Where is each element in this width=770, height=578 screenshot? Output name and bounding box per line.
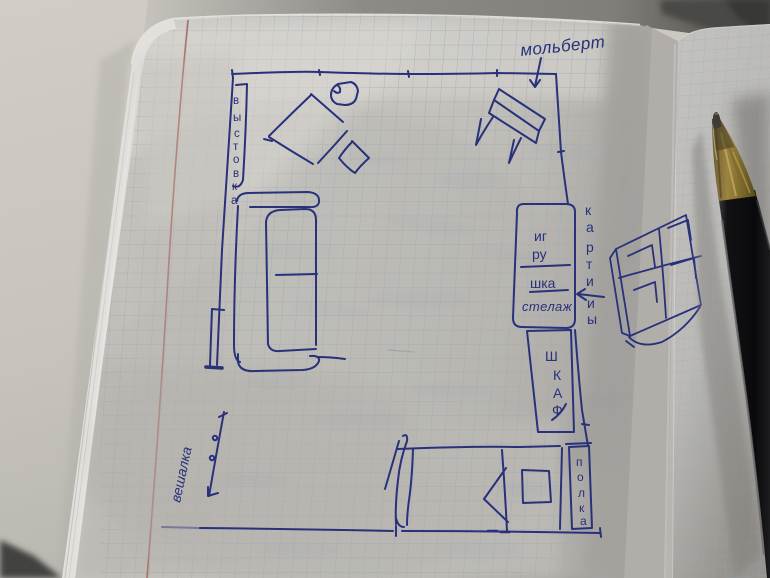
svg-text:а: а bbox=[580, 514, 587, 528]
svg-text:ы: ы bbox=[587, 311, 597, 327]
svg-text:стелаж: стелаж bbox=[522, 299, 573, 314]
svg-text:л: л bbox=[578, 486, 585, 500]
svg-text:ру: ру bbox=[532, 246, 547, 262]
svg-text:и: и bbox=[587, 295, 595, 311]
svg-text:Ф: Ф bbox=[552, 402, 563, 418]
svg-text:а: а bbox=[231, 195, 238, 207]
svg-text:иг: иг bbox=[534, 228, 547, 244]
svg-text:К: К bbox=[553, 367, 562, 383]
svg-text:ы: ы bbox=[233, 112, 241, 124]
svg-text:А: А bbox=[553, 385, 563, 401]
svg-text:шка: шка bbox=[530, 275, 556, 291]
svg-text:о: о bbox=[577, 470, 584, 484]
svg-text:к: к bbox=[585, 202, 592, 218]
svg-text:т: т bbox=[586, 256, 593, 272]
svg-text:а: а bbox=[586, 219, 594, 235]
svg-text:к: к bbox=[579, 501, 585, 515]
svg-text:в: в bbox=[233, 95, 239, 107]
svg-text:р: р bbox=[586, 239, 594, 255]
svg-text:и: и bbox=[586, 273, 594, 289]
svg-text:о: о bbox=[233, 154, 239, 166]
svg-text:п: п bbox=[576, 455, 583, 469]
svg-text:т: т bbox=[233, 141, 239, 153]
svg-text:с: с bbox=[234, 128, 240, 140]
svg-text:в: в bbox=[233, 168, 239, 180]
svg-text:Ш: Ш bbox=[545, 348, 558, 364]
